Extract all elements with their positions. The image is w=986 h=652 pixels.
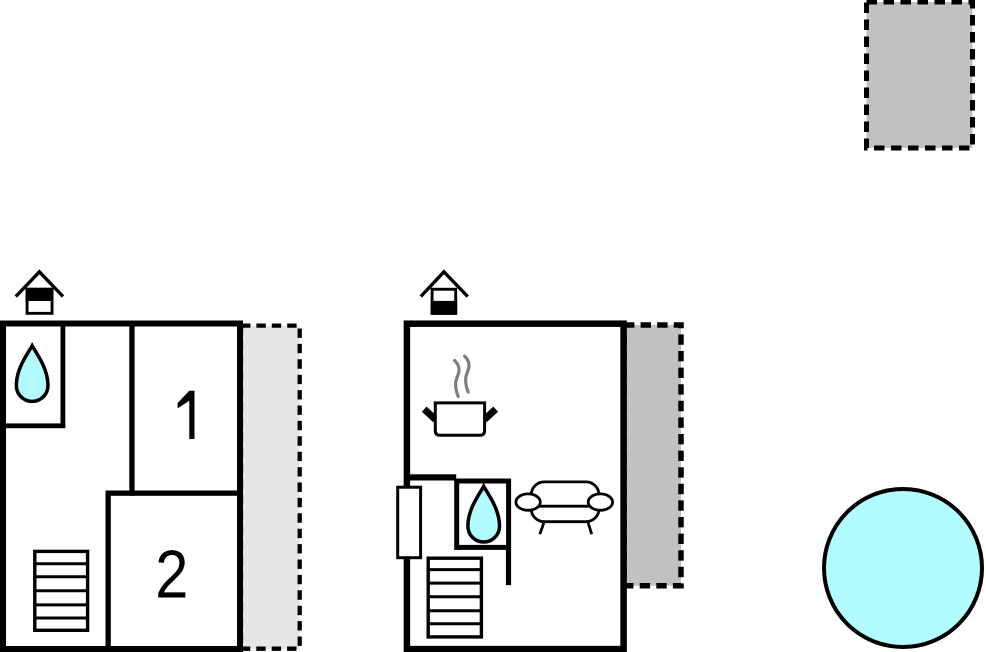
svg-text:2: 2	[155, 536, 188, 613]
